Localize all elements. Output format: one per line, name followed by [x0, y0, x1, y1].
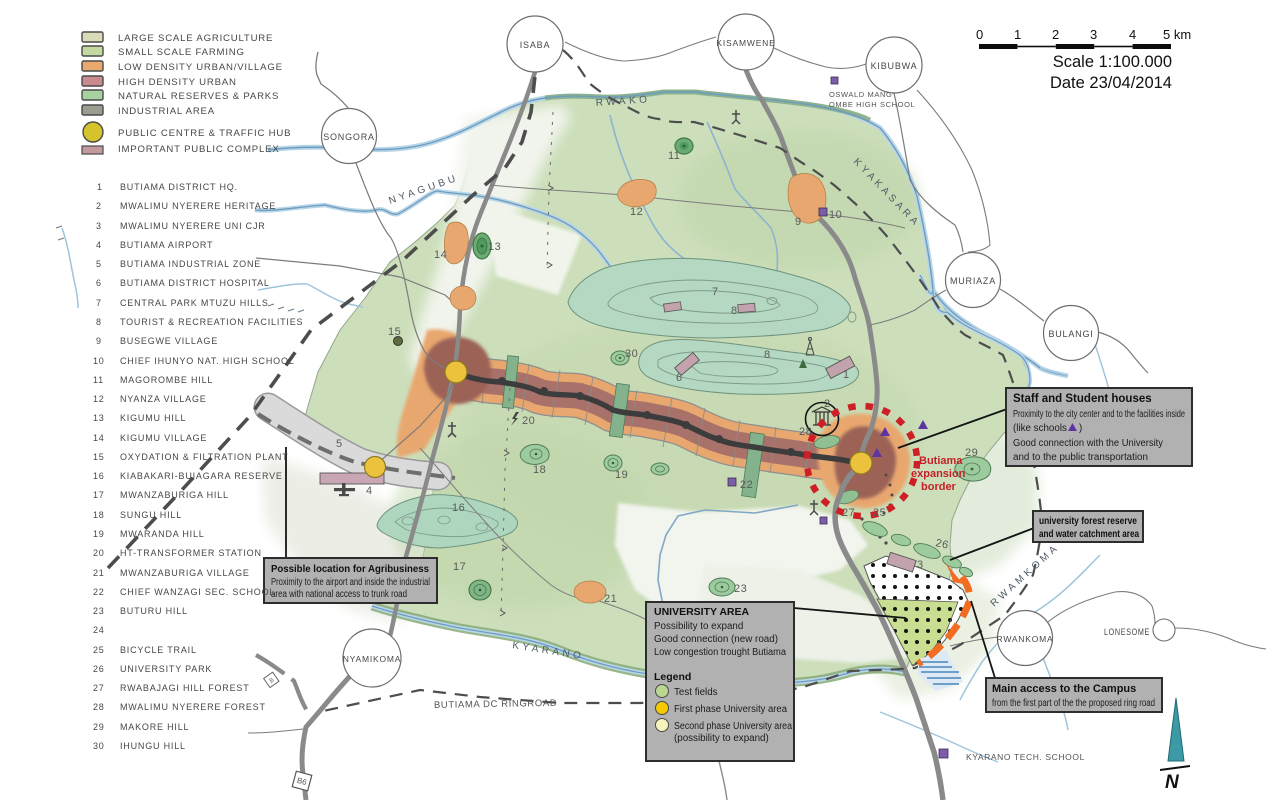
svg-text:14: 14: [434, 249, 447, 261]
svg-text:10: 10: [93, 356, 105, 366]
svg-text:27: 27: [842, 507, 855, 519]
svg-text:Staff and Student houses: Staff and Student houses: [1013, 393, 1152, 405]
svg-text:19: 19: [615, 469, 628, 481]
svg-text:25: 25: [93, 645, 105, 655]
svg-text:NYAMIKOMA: NYAMIKOMA: [343, 654, 402, 664]
svg-text:CHIEF IHUNYO NAT. HIGH SCHOOL: CHIEF IHUNYO NAT. HIGH SCHOOL: [120, 356, 295, 366]
svg-text:MWALIMU NYERERE FOREST: MWALIMU NYERERE FOREST: [120, 702, 266, 712]
svg-text:20: 20: [93, 548, 105, 558]
svg-text:OSWALD MANG': OSWALD MANG': [829, 90, 894, 99]
svg-text:Low congestion trought Butiama: Low congestion trought Butiama: [654, 647, 787, 658]
svg-text:HT-TRANSFORMER STATION: HT-TRANSFORMER STATION: [120, 548, 262, 558]
svg-text:IMPORTANT PUBLIC COMPLEX: IMPORTANT PUBLIC COMPLEX: [118, 144, 280, 155]
svg-text:9: 9: [795, 216, 802, 228]
svg-text:21: 21: [604, 593, 617, 605]
svg-text:13: 13: [488, 241, 501, 253]
svg-text:N: N: [1165, 772, 1180, 793]
svg-text:9: 9: [96, 336, 102, 346]
svg-text:KIABAKARI-BUIAGARA RESERVE: KIABAKARI-BUIAGARA RESERVE: [120, 471, 283, 481]
svg-text:RWABAJAGI HILL FOREST: RWABAJAGI HILL FOREST: [120, 683, 250, 693]
svg-text:TOURIST & RECREATION FACILITIE: TOURIST & RECREATION FACILITIES: [120, 317, 303, 327]
svg-text:MWALIMU NYERERE HERITAGE: MWALIMU NYERERE HERITAGE: [120, 201, 276, 211]
svg-text:NATURAL RESERVES & PARKS: NATURAL RESERVES & PARKS: [118, 91, 279, 102]
svg-text:and to the public transportati: and to the public transportation: [1013, 452, 1148, 463]
svg-text:MWANZABURIGA VILLAGE: MWANZABURIGA VILLAGE: [120, 568, 250, 578]
svg-text:0: 0: [976, 27, 983, 42]
svg-text:INDUSTRIAL AREA: INDUSTRIAL AREA: [118, 106, 215, 117]
svg-text:CENTRAL PARK MTUZU HILLS: CENTRAL PARK MTUZU HILLS: [120, 298, 269, 308]
svg-text:university forest reserve: university forest reserve: [1039, 516, 1137, 527]
svg-text:20: 20: [522, 415, 535, 427]
svg-text:27: 27: [93, 683, 105, 693]
svg-text:6: 6: [676, 372, 683, 384]
svg-text:MAGOROMBE HILL: MAGOROMBE HILL: [120, 375, 213, 385]
svg-text:16: 16: [93, 471, 105, 481]
svg-text:LONESOME: LONESOME: [1104, 627, 1150, 637]
svg-text:16: 16: [452, 502, 465, 514]
svg-text:BICYCLE TRAIL: BICYCLE TRAIL: [120, 645, 197, 655]
svg-text:Butiama: Butiama: [919, 455, 963, 467]
svg-text:OXYDATION & FILTRATION PLANT: OXYDATION & FILTRATION PLANT: [120, 452, 288, 462]
svg-text:Proximity to the airport and i: Proximity to the airport and inside the …: [271, 577, 430, 588]
svg-text:BUTIAMA DISTRICT HQ.: BUTIAMA DISTRICT HQ.: [120, 182, 238, 192]
svg-text:8: 8: [731, 305, 738, 317]
svg-text:UNIVERSITY PARK: UNIVERSITY PARK: [120, 664, 212, 674]
svg-text:Possibility to expand: Possibility to expand: [654, 621, 743, 632]
svg-text:2: 2: [1052, 27, 1059, 42]
svg-text:5: 5: [336, 438, 343, 450]
svg-text:24: 24: [93, 625, 105, 635]
svg-text:KISAMWENE: KISAMWENE: [716, 38, 775, 48]
svg-text:3: 3: [917, 559, 924, 571]
svg-text:Scale 1:100.000: Scale 1:100.000: [1053, 53, 1172, 71]
svg-text:expansion: expansion: [911, 468, 966, 480]
svg-text:11: 11: [668, 150, 680, 162]
svg-text:11: 11: [93, 375, 104, 385]
svg-text:22: 22: [93, 587, 105, 597]
svg-text:IHUNGU HILL: IHUNGU HILL: [120, 741, 186, 751]
svg-text:SONGORA: SONGORA: [323, 132, 375, 142]
svg-text:MWALIMU NYERERE UNI CJR: MWALIMU NYERERE UNI CJR: [120, 221, 266, 231]
svg-text:MWANZABURIGA HILL: MWANZABURIGA HILL: [120, 490, 229, 500]
svg-text:area with national access to t: area with national access to trunk road: [271, 589, 407, 600]
svg-text:3: 3: [1090, 27, 1097, 42]
svg-text:KYARANO TECH. SCHOOL: KYARANO TECH. SCHOOL: [966, 752, 1085, 762]
svg-text:2: 2: [96, 201, 102, 211]
svg-text:7: 7: [712, 286, 719, 298]
svg-text:Date 23/04/2014: Date 23/04/2014: [1050, 74, 1172, 92]
svg-text:6: 6: [96, 278, 102, 288]
svg-text:28: 28: [799, 426, 812, 438]
svg-text:15: 15: [388, 326, 401, 338]
svg-text:BUTIAMA AIRPORT: BUTIAMA AIRPORT: [120, 240, 213, 250]
svg-text:NYANZA VILLAGE: NYANZA VILLAGE: [120, 394, 207, 404]
svg-text:10: 10: [829, 209, 842, 221]
svg-text:MURIAZA: MURIAZA: [950, 276, 996, 286]
svg-text:4: 4: [96, 240, 102, 250]
svg-text:First phase University area: First phase University area: [674, 704, 788, 715]
svg-text:MAKORE HILL: MAKORE HILL: [120, 722, 189, 732]
svg-text:PUBLIC CENTRE & TRAFFIC HUB: PUBLIC CENTRE & TRAFFIC HUB: [118, 128, 291, 139]
svg-text:15: 15: [93, 452, 105, 462]
svg-text:13: 13: [93, 413, 105, 423]
svg-text:BUTIAMA DC RINGROAD: BUTIAMA DC RINGROAD: [434, 698, 557, 711]
svg-text:1: 1: [1014, 27, 1021, 42]
svg-text:BUTIAMA INDUSTRIAL ZONE: BUTIAMA INDUSTRIAL ZONE: [120, 259, 261, 269]
svg-text:23: 23: [93, 606, 105, 616]
svg-text:8: 8: [96, 317, 102, 327]
svg-text:BUTIAMA DISTRICT HOSPITAL: BUTIAMA DISTRICT HOSPITAL: [120, 278, 270, 288]
svg-text:3: 3: [96, 221, 102, 231]
svg-text:CHIEF WANZAGI SEC. SCHOOL: CHIEF WANZAGI SEC. SCHOOL: [120, 587, 275, 597]
svg-text:4: 4: [366, 485, 373, 497]
svg-text:UNIVERSITY AREA: UNIVERSITY AREA: [654, 606, 750, 618]
svg-text:12: 12: [93, 394, 105, 404]
svg-text:KIBUBWA: KIBUBWA: [871, 61, 918, 71]
svg-text:4: 4: [1129, 27, 1136, 42]
svg-text:14: 14: [93, 433, 105, 443]
svg-text:18: 18: [533, 464, 546, 476]
svg-text:8: 8: [764, 349, 771, 361]
svg-text:1: 1: [97, 182, 103, 192]
svg-text:Good connection (new road): Good connection (new road): [654, 634, 778, 645]
svg-text:29: 29: [93, 722, 105, 732]
svg-text:from the first part of the the: from the first part of the the proposed …: [992, 698, 1155, 709]
svg-text:LOW DENSITY URBAN/VILLAGE: LOW DENSITY URBAN/VILLAGE: [118, 62, 283, 73]
svg-text:29: 29: [965, 447, 978, 459]
svg-text:and water catchment area: and water catchment area: [1039, 529, 1139, 540]
svg-text:MWARANDA HILL: MWARANDA HILL: [120, 529, 205, 539]
svg-text:19: 19: [93, 529, 105, 539]
svg-text:Good connection with the Unive: Good connection with the University: [1013, 438, 1163, 449]
svg-text:Proximity to the city center a: Proximity to the city center and to the …: [1013, 409, 1185, 420]
svg-text:Test fields: Test fields: [674, 687, 718, 698]
svg-text:12: 12: [630, 206, 643, 218]
svg-text:2: 2: [824, 398, 831, 410]
svg-text:Legend: Legend: [654, 671, 691, 683]
svg-text:SUNGU HILL: SUNGU HILL: [120, 510, 182, 520]
svg-text:KIGUMU HILL: KIGUMU HILL: [120, 413, 186, 423]
svg-text:7: 7: [96, 298, 102, 308]
svg-text:17: 17: [453, 561, 466, 573]
svg-text:30: 30: [625, 348, 638, 360]
svg-text:23: 23: [734, 583, 747, 595]
svg-text:(possibility to expand): (possibility to expand): [674, 733, 769, 744]
svg-text:BUSEGWE VILLAGE: BUSEGWE VILLAGE: [120, 336, 218, 346]
svg-text:BUTURU HILL: BUTURU HILL: [120, 606, 188, 616]
svg-text:KIGUMU VILLAGE: KIGUMU VILLAGE: [120, 433, 207, 443]
svg-text:28: 28: [93, 702, 105, 712]
svg-text:22: 22: [740, 479, 753, 491]
svg-text:ISABA: ISABA: [520, 40, 551, 50]
svg-text:5: 5: [96, 259, 102, 269]
svg-text:BULANGI: BULANGI: [1048, 329, 1093, 339]
svg-text:(like schools: (like schools: [1013, 423, 1067, 434]
svg-text:Possible location for Agribusi: Possible location for Agribusiness: [271, 563, 429, 575]
svg-text:HIGH DENSITY URBAN: HIGH DENSITY URBAN: [118, 77, 237, 88]
svg-text:SMALL SCALE FARMING: SMALL SCALE FARMING: [118, 47, 245, 58]
svg-text:): ): [1079, 423, 1082, 434]
svg-text:25: 25: [873, 507, 886, 519]
svg-text:RWANKOMA: RWANKOMA: [997, 634, 1054, 644]
svg-text:26: 26: [93, 664, 105, 674]
svg-text:1: 1: [843, 369, 850, 381]
svg-text:Main access to the Campus: Main access to the Campus: [992, 683, 1136, 695]
svg-text:Second phase University area: Second phase University area: [674, 721, 792, 732]
svg-text:17: 17: [93, 490, 105, 500]
svg-text:LARGE SCALE AGRICULTURE: LARGE SCALE AGRICULTURE: [118, 33, 273, 44]
svg-text:OMBE HIGH SCHOOL: OMBE HIGH SCHOOL: [829, 100, 915, 109]
svg-text:5 km: 5 km: [1163, 27, 1191, 42]
svg-text:30: 30: [93, 741, 105, 751]
svg-text:18: 18: [93, 510, 105, 520]
svg-text:border: border: [921, 481, 957, 493]
svg-text:21: 21: [93, 568, 105, 578]
